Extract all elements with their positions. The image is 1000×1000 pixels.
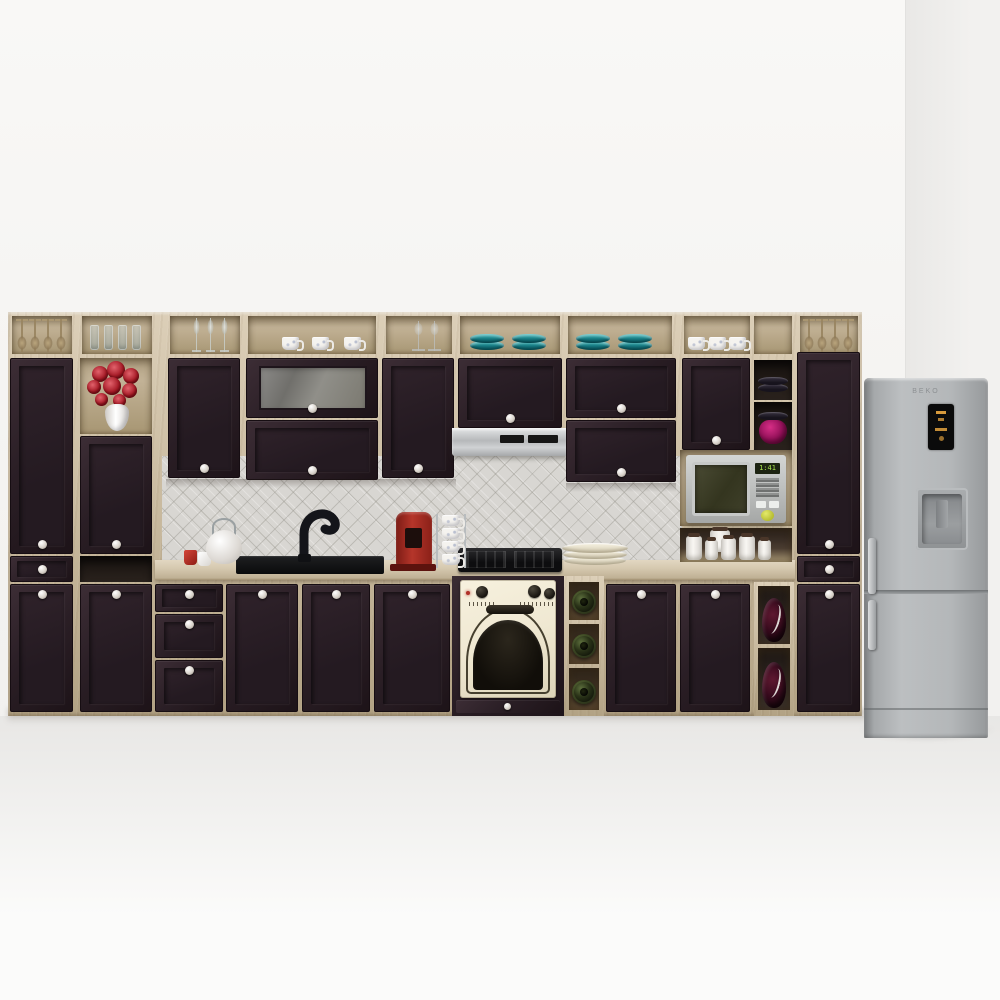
wall-cabinet-flip-door: [246, 420, 378, 480]
open-shelf: [800, 316, 858, 354]
wine-glass: [816, 319, 828, 352]
microwave-button: [769, 501, 779, 508]
door-panel: [391, 366, 445, 470]
fridge-display-segment: [938, 418, 944, 421]
door-knob: [414, 464, 423, 473]
teal-plate-stack: [512, 334, 546, 352]
dispenser-paddle: [936, 500, 948, 528]
cream-plate: [562, 543, 628, 553]
base-cabinet-door: [302, 584, 370, 712]
door-panel: [19, 366, 64, 546]
wine-cubby: [569, 668, 599, 710]
fridge-door-handle: [868, 538, 876, 594]
door-panel: [89, 592, 143, 704]
flower-vase: [105, 404, 129, 431]
floral-cup: [709, 337, 726, 350]
freezer-drawer-line: [864, 708, 988, 710]
coffee-machine: [396, 512, 432, 566]
wall-cabinet-door: [168, 358, 240, 478]
wine-bottle: [572, 634, 596, 658]
microwave: 1:41: [686, 455, 786, 523]
microwave-display: 1:41: [755, 463, 780, 474]
base-cabinet-door: [374, 584, 450, 712]
hood-control-panel: [528, 435, 558, 443]
open-shelf: [248, 316, 376, 354]
espresso-cup: [442, 528, 460, 539]
stem-glass: [220, 318, 229, 352]
oven-knob: [476, 586, 488, 598]
microwave-start-button: [761, 510, 774, 521]
open-cubby: [758, 586, 790, 644]
floral-cup: [729, 337, 746, 350]
floral-cup: [282, 337, 299, 350]
base-drawer: [155, 660, 223, 712]
floor: [0, 716, 1000, 1000]
dark-plate-stack: [758, 377, 788, 385]
canister: [739, 536, 755, 560]
drawer-knob: [185, 590, 194, 599]
door-knob: [200, 464, 209, 473]
espresso-cup: [442, 554, 460, 565]
wine-bottle: [572, 590, 596, 614]
canister-niche: [680, 528, 792, 562]
fridge: BEKO: [864, 378, 988, 738]
open-niche: [80, 556, 152, 582]
teal-plate-stack: [576, 334, 610, 352]
canister: [686, 536, 702, 560]
fridge-display-segment: [935, 428, 947, 431]
wall-cabinet-flip-door: [566, 420, 676, 482]
wine-cubby: [569, 582, 599, 620]
purple-vase: [762, 598, 786, 642]
door-knob: [308, 404, 317, 413]
teapot: [206, 530, 242, 564]
wine-glass: [16, 319, 28, 352]
clear-wine-glass: [412, 321, 425, 351]
water-dispenser: [916, 488, 968, 550]
base-cabinet-door: [797, 584, 860, 712]
door-panel: [177, 366, 231, 470]
teal-plate: [470, 334, 504, 343]
kitchen-render: 1:41: [0, 0, 1000, 1000]
door-knob: [617, 404, 626, 413]
hood-control-panel: [500, 435, 524, 443]
flower: [123, 368, 139, 384]
microwave-button: [756, 501, 766, 508]
door-knob: [332, 590, 341, 599]
base-drawer: [155, 614, 223, 658]
door-panel: [467, 366, 553, 420]
oven-knob: [544, 588, 555, 599]
door-knob: [637, 590, 646, 599]
teal-plate-stack: [618, 334, 652, 352]
oven: [460, 580, 556, 698]
door-panel: [615, 592, 667, 704]
flower: [87, 380, 101, 394]
wall-cabinet-door: [682, 358, 750, 450]
base-cabinet-door: [10, 584, 73, 712]
base-cabinet-door: [680, 584, 750, 712]
dark-plate-stack: [758, 384, 788, 392]
cabinet-shadow: [166, 479, 456, 488]
floral-cup: [312, 337, 329, 350]
drawer-knob: [185, 620, 194, 629]
door-knob: [408, 590, 417, 599]
door-panel: [383, 592, 441, 704]
red-cup: [184, 550, 197, 565]
hob-grate: [466, 551, 506, 568]
base-cabinet-door: [80, 584, 152, 712]
door-knob: [112, 590, 121, 599]
teal-plate: [512, 334, 546, 343]
tumbler-glass: [90, 325, 99, 350]
drawer-knob: [185, 666, 194, 675]
door-knob: [825, 540, 834, 549]
microwave-keypad: [756, 478, 779, 498]
open-shelf: [754, 316, 792, 354]
door-knob: [712, 436, 721, 445]
canister: [721, 538, 736, 560]
flower: [103, 377, 121, 395]
door-panel: [89, 444, 143, 546]
cabinet-drawer: [797, 556, 860, 582]
wine-rack: [564, 576, 604, 716]
vase-pattern: [765, 603, 784, 635]
wine-glass: [42, 319, 54, 352]
drawer-knob: [38, 565, 47, 574]
drawer-knob: [825, 565, 834, 574]
gas-hob: [458, 548, 562, 572]
tall-cabinet-door: [10, 358, 73, 554]
open-cubby: [754, 402, 792, 450]
fridge-display-segment: [936, 411, 946, 414]
base-drawer: [155, 584, 223, 612]
cabinet-drawer: [10, 556, 73, 582]
drawer-knob: [504, 703, 511, 710]
door-panel: [806, 360, 851, 546]
oven-door-handle: [486, 605, 534, 614]
teal-plate-stack: [470, 334, 504, 352]
wine-cubby: [569, 624, 599, 664]
stem-glass: [206, 318, 215, 352]
teal-plate: [618, 334, 652, 343]
door-knob: [308, 466, 317, 475]
canister: [705, 540, 718, 560]
cream-plate-stack: [562, 542, 628, 566]
base-cabinet-door: [606, 584, 676, 712]
open-cubby: [758, 648, 790, 710]
flower: [95, 393, 108, 406]
wine-glass: [55, 319, 67, 352]
door-panel: [806, 592, 851, 704]
faucet: [290, 500, 342, 562]
freezer-door-handle: [868, 600, 876, 650]
fridge-display: [928, 404, 954, 450]
door-panel: [311, 592, 361, 704]
fridge-freezer-divider: [864, 590, 988, 594]
cooker-hood: [452, 428, 568, 456]
door-knob: [506, 414, 515, 423]
purple-vase: [762, 662, 786, 708]
canister: [758, 540, 771, 560]
door-knob: [112, 540, 121, 549]
microwave-window: [692, 462, 750, 516]
espresso-cup: [442, 541, 460, 552]
wall-cabinet-flip-door: [566, 358, 676, 418]
fridge-brand: BEKO: [864, 388, 988, 395]
door-knob: [38, 540, 47, 549]
wall-cabinet-glass-door: [246, 358, 378, 418]
door-knob: [825, 590, 834, 599]
espresso-cup-tower: [436, 514, 466, 568]
clear-wine-glass: [428, 321, 441, 351]
tall-cabinet-door: [797, 352, 860, 554]
microwave-display-text: 1:41: [755, 463, 780, 473]
base-cabinet-door: [226, 584, 298, 712]
tumbler-glass: [118, 325, 127, 350]
cabinet-shadow: [566, 483, 676, 492]
door-knob: [711, 590, 720, 599]
floral-cup: [688, 337, 705, 350]
tumbler-glass: [132, 325, 141, 350]
fridge-display-segment: [939, 436, 944, 441]
dark-plate: [758, 412, 788, 420]
wine-glass: [803, 319, 815, 352]
door-knob: [38, 590, 47, 599]
door-knob: [617, 468, 626, 477]
magenta-bowl: [759, 420, 787, 444]
coffee-machine-tray: [390, 564, 436, 571]
oven-knob: [528, 585, 541, 598]
door-panel: [689, 592, 741, 704]
espresso-cup: [442, 515, 460, 526]
tumbler-glass: [104, 325, 113, 350]
open-shelf: [684, 316, 750, 354]
open-shelf: [170, 316, 240, 354]
open-niche-flowers: [80, 358, 152, 434]
stem-glass: [192, 318, 201, 352]
door-knob: [258, 590, 267, 599]
oven-indicator-light: [466, 591, 470, 595]
wine-bottle: [572, 680, 596, 704]
open-shelf: [386, 316, 452, 354]
wall-cabinet-door: [382, 358, 454, 478]
wine-glass: [829, 319, 841, 352]
open-shelf: [82, 316, 152, 354]
teal-plate: [576, 334, 610, 343]
open-shelf: [460, 316, 560, 354]
open-shelf: [568, 316, 672, 354]
hob-grate: [514, 551, 554, 568]
wine-glass: [29, 319, 41, 352]
open-cubby-column: [754, 582, 794, 716]
coffee-machine-slot: [405, 528, 422, 548]
open-shelf: [12, 316, 72, 354]
door-panel: [235, 592, 289, 704]
vase-pattern: [765, 667, 784, 699]
wine-glass: [842, 319, 854, 352]
cabinet-door: [80, 436, 152, 554]
hood-cabinet-door: [458, 358, 562, 428]
open-cubby: [754, 360, 792, 400]
door-panel: [19, 592, 64, 704]
floral-cup: [344, 337, 361, 350]
oven-base-drawer: [456, 700, 560, 713]
door-panel: [691, 366, 741, 442]
